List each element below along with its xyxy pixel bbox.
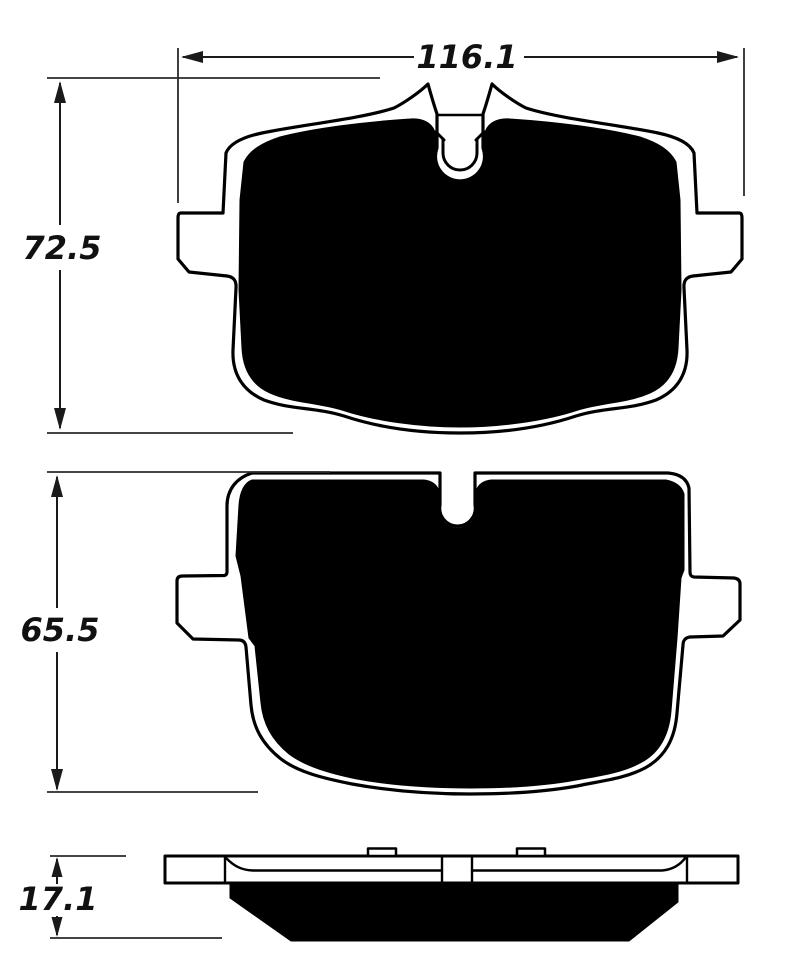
dimension-label-height-view2: 65.5	[21, 611, 100, 649]
pad-front-view-1	[178, 84, 742, 433]
drawing-canvas: 116.1 72.5 65.5	[0, 0, 788, 964]
pad-side-view	[165, 849, 738, 942]
arrowhead-down	[51, 769, 63, 791]
mount-tab-left	[368, 849, 396, 857]
arrowhead-up	[54, 81, 66, 103]
arrowhead-down	[54, 408, 66, 430]
dimension-label-height-view1: 72.5	[23, 229, 102, 267]
arrowhead-down	[52, 917, 63, 937]
friction-material-view1	[239, 119, 681, 427]
arrowhead-left	[181, 51, 203, 63]
dimension-label-width: 116.1	[416, 38, 517, 76]
mount-tab-right	[517, 849, 545, 857]
pad-front-view-2	[177, 473, 740, 794]
arrowhead-right	[717, 51, 739, 63]
arrowhead-up	[52, 857, 63, 877]
retaining-clip-view1	[443, 139, 477, 170]
dimension-label-thickness: 17.1	[19, 880, 98, 918]
brake-pad-technical-drawing: 116.1 72.5 65.5	[0, 0, 788, 964]
arrowhead-up	[51, 475, 63, 497]
friction-block-side	[230, 883, 678, 941]
